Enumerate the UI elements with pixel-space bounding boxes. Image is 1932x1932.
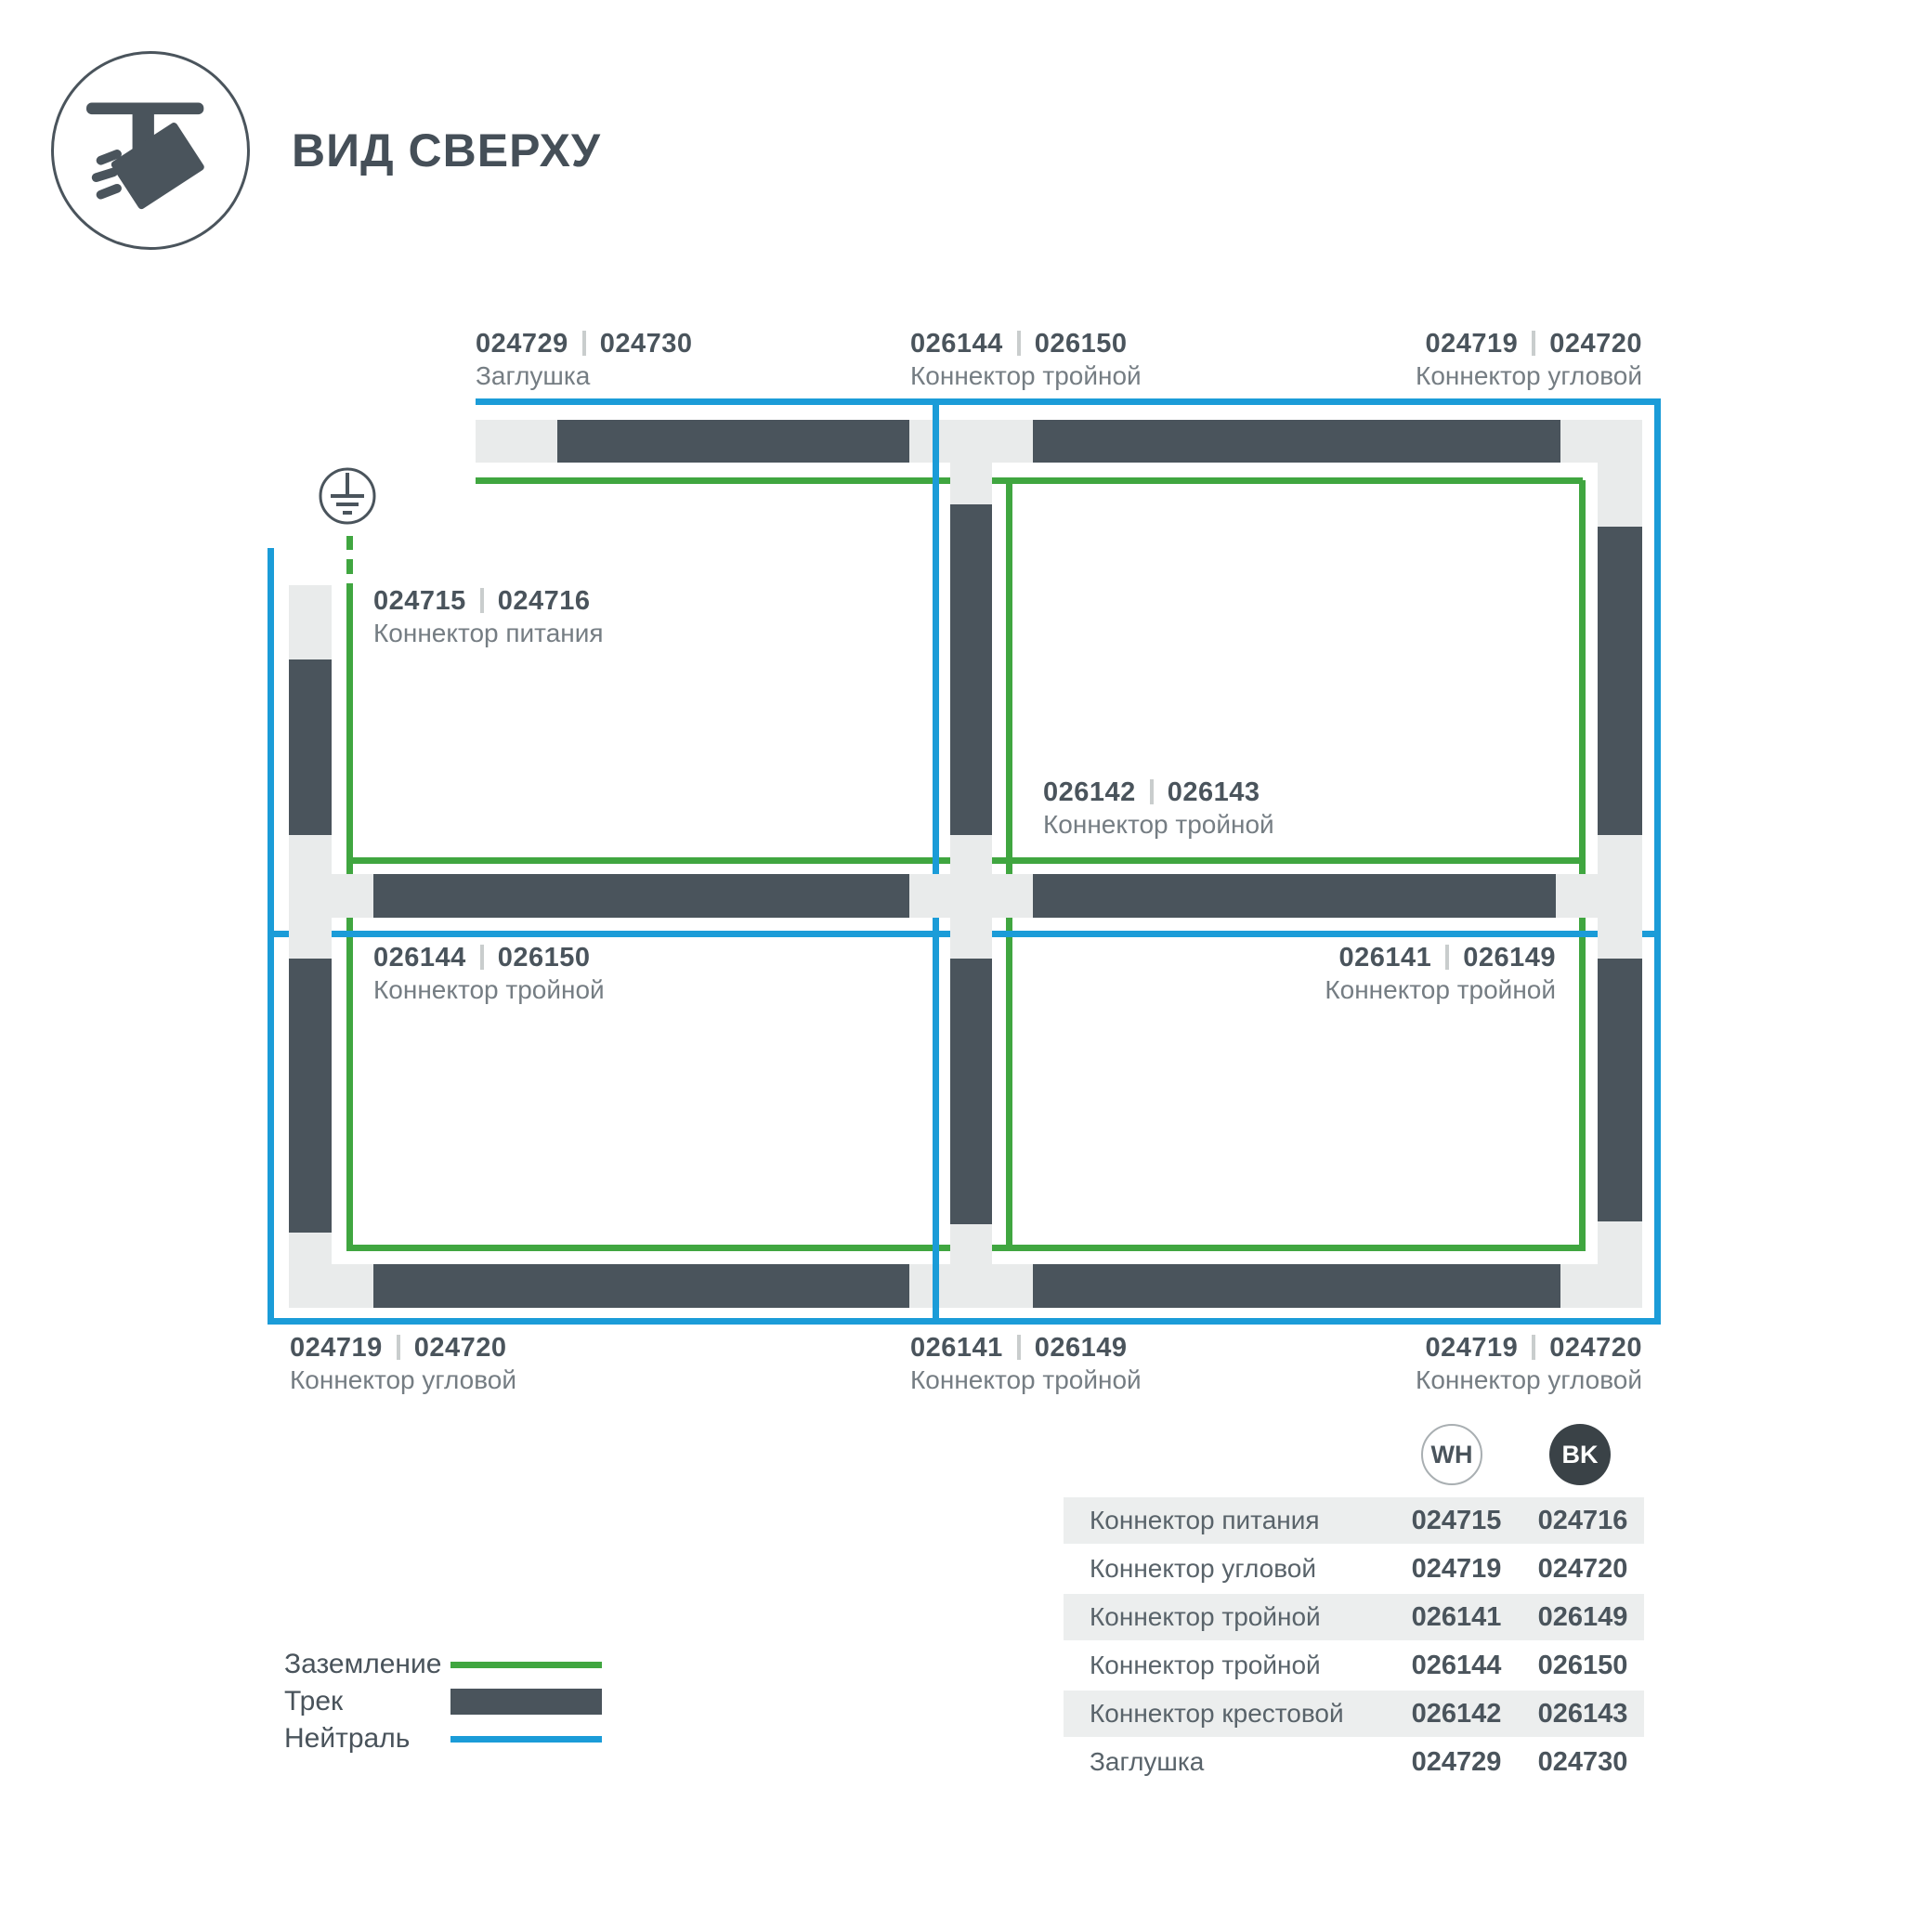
corner-connector <box>289 1264 373 1308</box>
triple-connector <box>289 835 332 959</box>
cross-connector <box>950 835 992 959</box>
neutral-line-top <box>476 398 1661 405</box>
part-label: 026144026150 Коннектор тройной <box>910 328 1142 391</box>
neutral-line-right <box>1654 398 1661 1325</box>
table-row: Коннектор угловой 024719 024720 <box>1064 1546 1644 1592</box>
page-title: ВИД СВЕРХУ <box>292 127 601 174</box>
table-row: Коннектор крестовой 026142 026143 <box>1064 1690 1644 1737</box>
legend-label: Заземление <box>284 1649 441 1680</box>
ground-line-center <box>1006 480 1012 1251</box>
part-label: 024719024720 Коннектор угловой <box>1416 328 1642 391</box>
triple-connector <box>909 420 1033 463</box>
neutral-line-center <box>933 1264 939 1308</box>
table-row: Коннектор питания 024715 024716 <box>1064 1497 1644 1544</box>
corner-connector <box>1598 1221 1642 1308</box>
triple-connector <box>950 1224 992 1264</box>
color-badge-white: WH <box>1421 1424 1482 1485</box>
power-connector <box>289 585 332 659</box>
triple-connector <box>1556 874 1598 918</box>
corner-connector <box>1598 420 1642 527</box>
legend-item-ground: Заземление <box>284 1646 602 1683</box>
track-light-icon <box>51 51 250 250</box>
part-label: 026144026150 Коннектор тройной <box>373 942 605 1005</box>
triple-connector <box>909 1264 1033 1308</box>
part-label: 024715024716 Коннектор питания <box>373 585 604 648</box>
part-label: 024719024720 Коннектор угловой <box>1416 1332 1642 1395</box>
neutral-line-center <box>933 398 939 1325</box>
end-cap-connector <box>476 420 557 463</box>
page: ВИД СВЕРХУ <box>0 0 1932 1932</box>
part-label: 024729024730 Заглушка <box>476 328 693 391</box>
ground-line-top <box>476 477 1583 484</box>
track-top <box>476 420 1642 463</box>
part-label: 026142026143 Коннектор тройной <box>1043 777 1274 840</box>
table-row: Заглушка 024729 024730 <box>1064 1739 1644 1785</box>
table-row: Коннектор тройной 026141 026149 <box>1064 1594 1644 1640</box>
ground-feed-dash <box>346 559 353 574</box>
track-swatch <box>450 1689 602 1715</box>
triple-connector <box>950 463 992 504</box>
neutral-line-center <box>933 420 939 463</box>
triple-connector <box>332 874 373 918</box>
table-row: Коннектор тройной 026144 026150 <box>1064 1642 1644 1689</box>
part-label: 026141026149 Коннектор тройной <box>910 1332 1142 1395</box>
part-label: 024719024720 Коннектор угловой <box>290 1332 516 1395</box>
ground-feed-dash <box>346 536 353 550</box>
ground-line-swatch <box>450 1662 602 1668</box>
ground-line-right <box>1579 480 1586 1251</box>
neutral-line-swatch <box>450 1736 602 1743</box>
triple-connector <box>1598 835 1642 959</box>
ground-symbol-icon <box>319 465 376 531</box>
color-badge-black: BK <box>1549 1424 1611 1485</box>
legend-item-track: Трек <box>284 1683 602 1720</box>
legend-label: Нейтраль <box>284 1723 410 1755</box>
part-label: 026141026149 Коннектор тройной <box>1325 942 1556 1005</box>
neutral-line-bottom <box>268 1318 1661 1325</box>
legend-item-neutral: Нейтраль <box>284 1720 602 1757</box>
legend-label: Трек <box>284 1686 343 1717</box>
